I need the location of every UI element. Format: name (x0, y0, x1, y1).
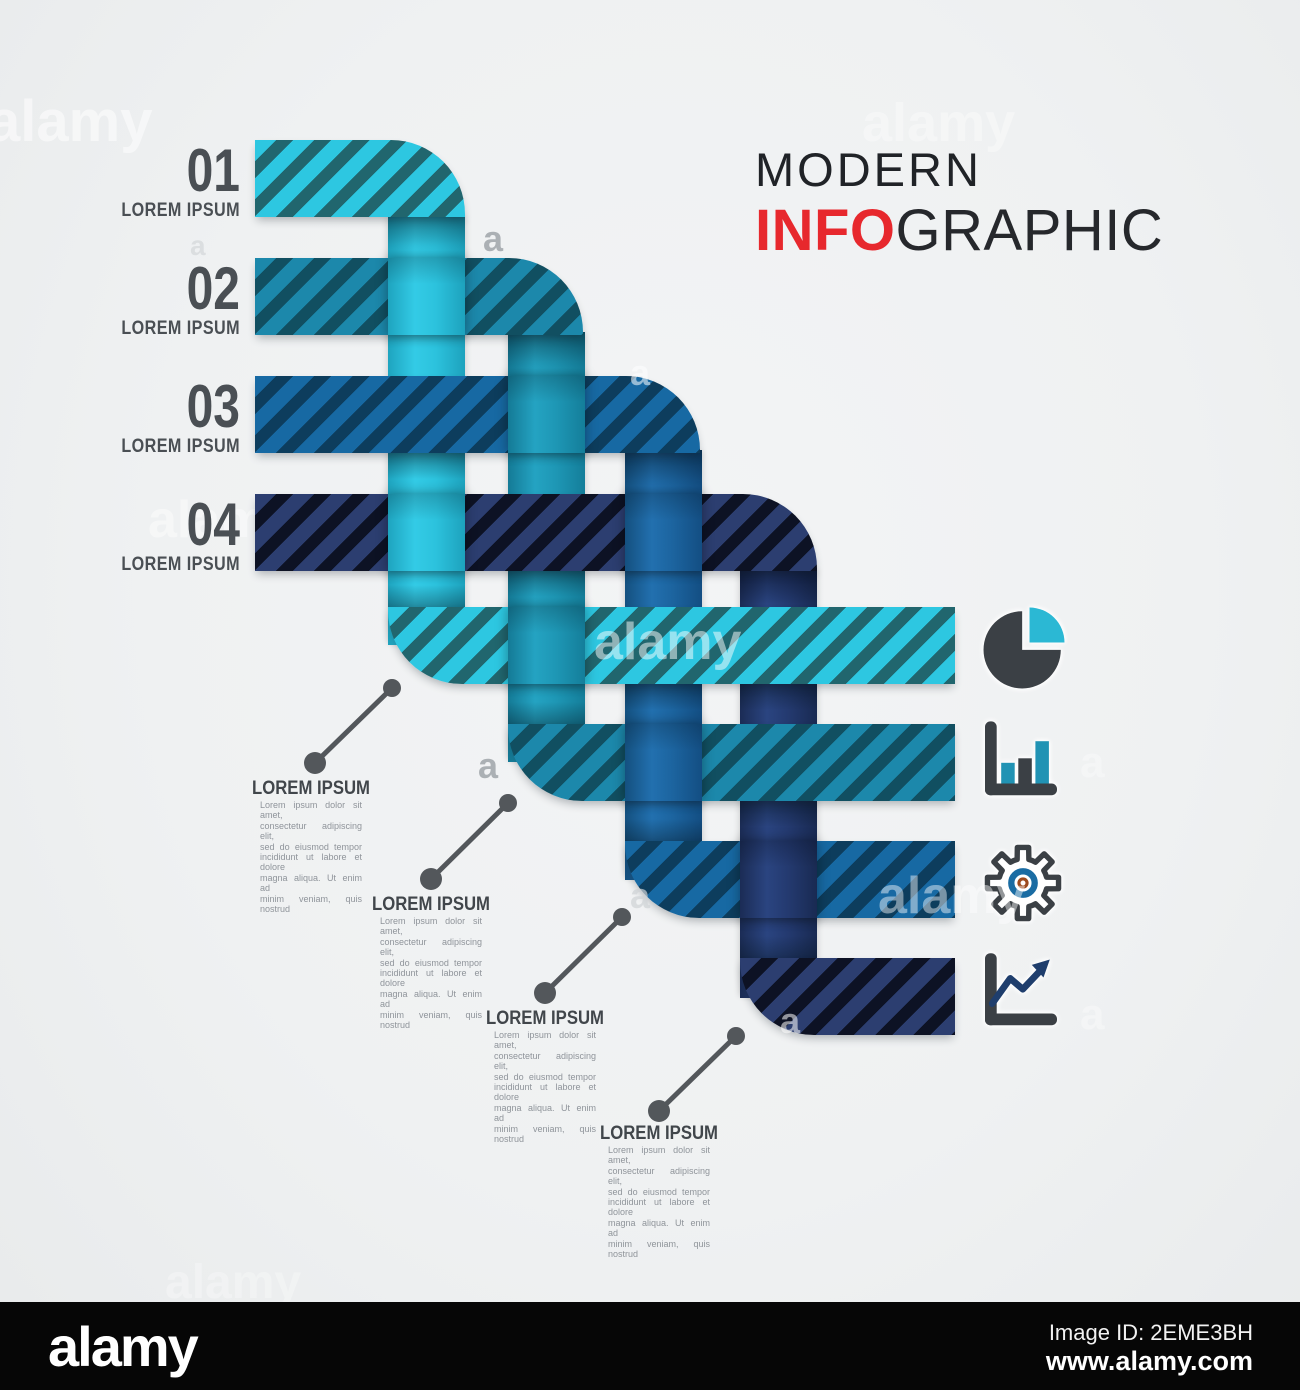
ribbon-shadow (740, 801, 817, 827)
body-line: magna aliqua. Ut enim ad (494, 1103, 596, 1124)
infographic-canvas: alamy alamy alamy alamy 01 LOREM IPSUM 0… (0, 0, 1300, 1390)
body-line: Lorem ipsum dolor sit amet, (380, 916, 482, 937)
body-line: incididunt ut labore et dolore (260, 852, 362, 873)
weave-over-patch (388, 258, 465, 335)
body-line: minim veniam, quis nostrud (608, 1239, 710, 1260)
body-line: incididunt ut labore et dolore (494, 1082, 596, 1103)
body-line: Lorem ipsum dolor sit amet, (608, 1145, 710, 1166)
body-line: minim veniam, quis nostrud (260, 894, 362, 915)
step-1-number: 01 (48, 144, 240, 198)
weave-over-patch (740, 841, 817, 918)
title-accent: INFO (755, 198, 896, 263)
pie-chart-icon (978, 602, 1070, 694)
title-line1: MODERN (755, 146, 1163, 193)
body-line: sed do eiusmod tempor (494, 1072, 596, 1082)
step-2-label: LOREM IPSUM (36, 318, 240, 340)
ribbon-shadow (740, 936, 817, 958)
callout-2-body: Lorem ipsum dolor sit amet, consectetur … (380, 916, 482, 1030)
callout-1-body: Lorem ipsum dolor sit amet, consectetur … (260, 800, 362, 914)
footer-image-id: Image ID: 2EME3BH (1049, 1320, 1253, 1346)
ribbon-shadow (508, 571, 585, 597)
ribbon-shadow (625, 684, 702, 710)
title-rest: GRAPHIC (896, 198, 1164, 263)
watermark-letter: a (1080, 738, 1104, 788)
body-line: consectetur adipiscing elit, (260, 821, 362, 842)
step-1: 01 LOREM IPSUM (0, 144, 240, 222)
body-line: sed do eiusmod tempor (260, 842, 362, 852)
weave-over-patch (625, 724, 702, 801)
step-2: 02 LOREM IPSUM (0, 262, 240, 340)
body-line: consectetur adipiscing elit, (380, 937, 482, 958)
body-line: Lorem ipsum dolor sit amet, (494, 1030, 596, 1051)
step-4-number: 04 (48, 498, 240, 552)
body-line: Lorem ipsum dolor sit amet, (260, 800, 362, 821)
page-title: MODERN INFOGRAPHIC (755, 146, 1163, 260)
step-3: 03 LOREM IPSUM (0, 380, 240, 458)
callout-3-body: Lorem ipsum dolor sit amet, consectetur … (494, 1030, 596, 1144)
ribbon-shadow (740, 684, 817, 710)
ribbon-shadow (625, 819, 702, 841)
ribbon4-lower-row (740, 958, 955, 1035)
body-line: magna aliqua. Ut enim ad (380, 989, 482, 1010)
body-line: consectetur adipiscing elit, (608, 1166, 710, 1187)
callout-1-heading: LOREM IPSUM (236, 778, 386, 800)
callout-3-heading: LOREM IPSUM (470, 1008, 620, 1030)
title-line2: INFOGRAPHIC (755, 202, 1163, 260)
watermark-letter: a (483, 218, 503, 260)
footer-url: www.alamy.com (1046, 1346, 1253, 1377)
weave-over-patch (508, 376, 585, 453)
ribbon4-row (255, 494, 817, 571)
body-line: magna aliqua. Ut enim ad (608, 1218, 710, 1239)
callout-4-heading: LOREM IPSUM (584, 1123, 734, 1145)
step-1-label: LOREM IPSUM (36, 200, 240, 222)
gear-icon (978, 838, 1068, 928)
ribbon-shadow (508, 702, 585, 724)
watermark-letter: a (1080, 990, 1104, 1040)
ribbon-shadow (388, 453, 465, 479)
step-4-label: LOREM IPSUM (36, 554, 240, 576)
weave-over-patch (625, 494, 702, 571)
step-3-label: LOREM IPSUM (36, 436, 240, 458)
bar-chart-icon (976, 716, 1066, 806)
line-chart-icon (976, 946, 1066, 1036)
ribbon1-row (255, 140, 465, 217)
body-line: sed do eiusmod tempor (608, 1187, 710, 1197)
step-3-number: 03 (48, 380, 240, 434)
body-line: magna aliqua. Ut enim ad (260, 873, 362, 894)
watermark-letter: a (478, 745, 498, 787)
body-line: sed do eiusmod tempor (380, 958, 482, 968)
weave-over-patch (388, 494, 465, 571)
callout-4-body: Lorem ipsum dolor sit amet, consectetur … (608, 1145, 710, 1259)
body-line: incididunt ut labore et dolore (608, 1197, 710, 1218)
callout-2-heading: LOREM IPSUM (356, 894, 506, 916)
body-line: minim veniam, quis nostrud (494, 1124, 596, 1145)
footer-bar: alamy Image ID: 2EME3BH www.alamy.com (0, 1302, 1300, 1390)
ribbon2-lower-row (508, 724, 955, 801)
footer-alamy-logo: alamy (48, 1314, 197, 1379)
step-4: 04 LOREM IPSUM (0, 498, 240, 576)
ribbon-shadow (388, 585, 465, 607)
body-line: incididunt ut labore et dolore (380, 968, 482, 989)
step-2-number: 02 (48, 262, 240, 316)
body-line: consectetur adipiscing elit, (494, 1051, 596, 1072)
body-line: minim veniam, quis nostrud (380, 1010, 482, 1031)
weave-over-patch (508, 607, 585, 684)
ribbon3-row (255, 376, 700, 453)
ribbon1-lower-row (388, 607, 955, 684)
